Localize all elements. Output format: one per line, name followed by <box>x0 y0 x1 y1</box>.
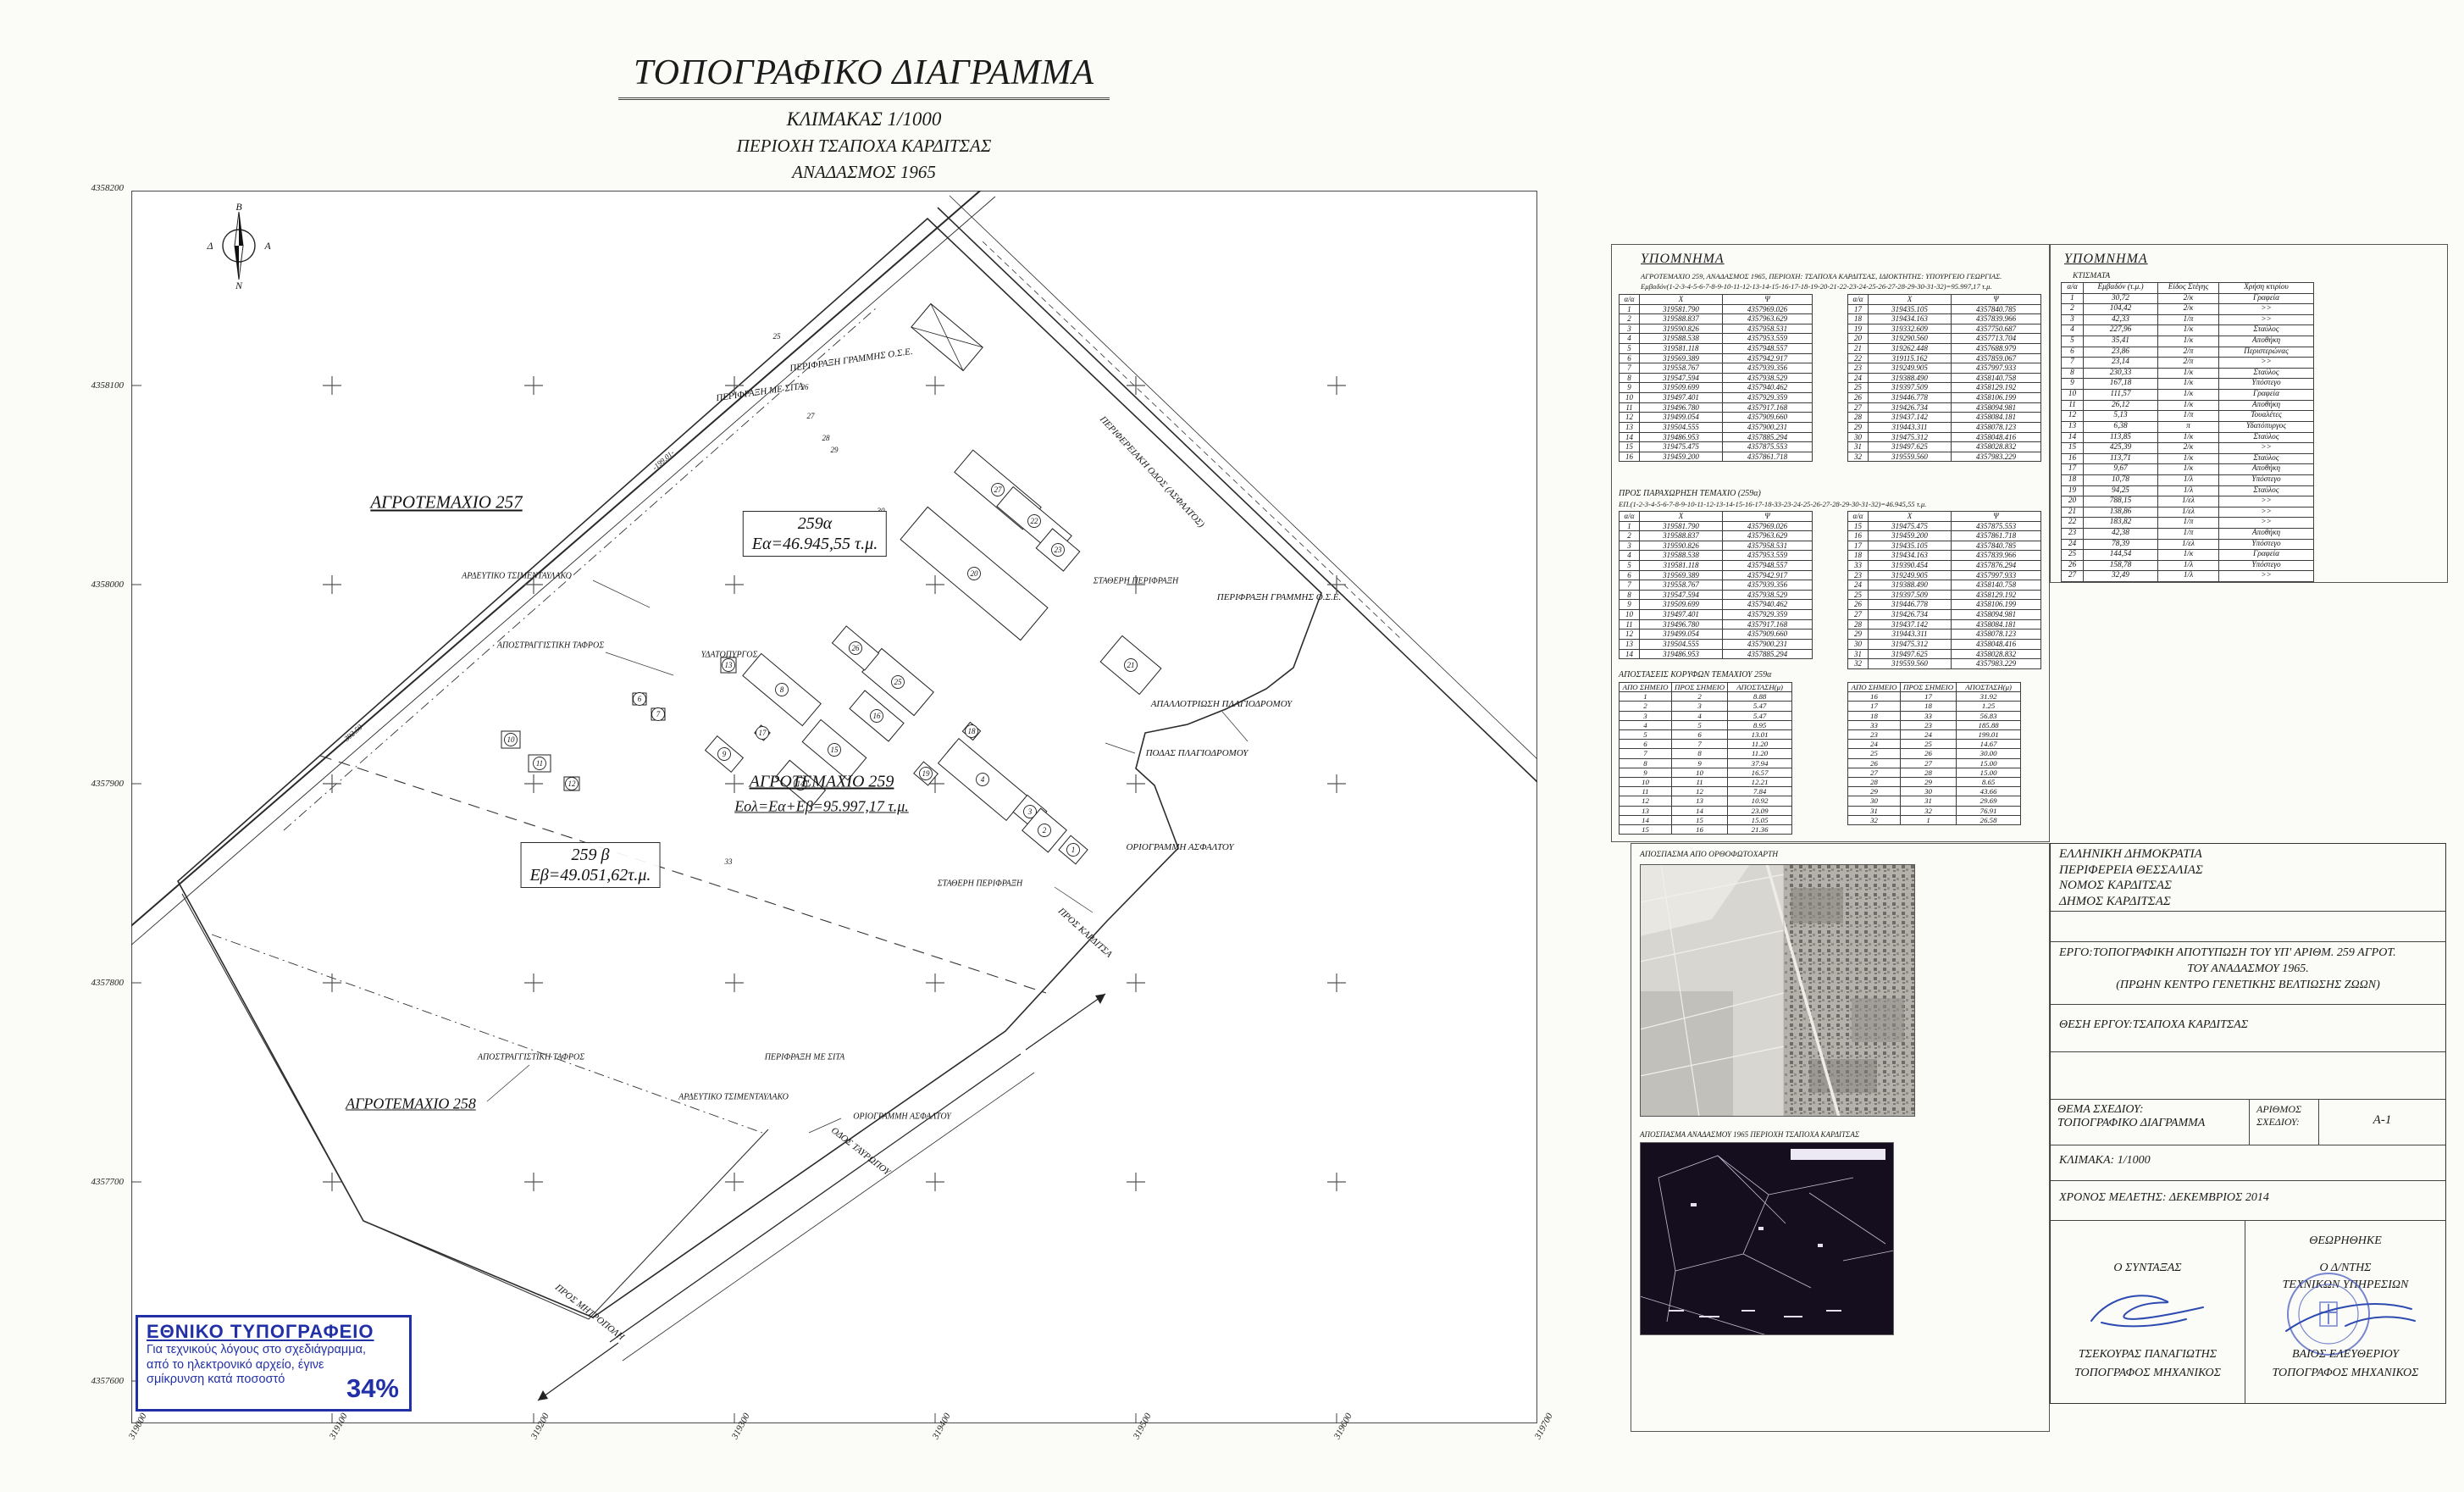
table-cell: 319435.105 <box>1869 541 1952 551</box>
table-row: 130,722/κΓραφεία <box>2062 293 2314 304</box>
table-cell: 319475.312 <box>1869 639 1952 649</box>
building: 11 <box>529 755 551 772</box>
table-cell: 319590.826 <box>1640 324 1723 334</box>
table-cell: 15.00 <box>1957 758 2021 768</box>
table-cell: 26 <box>1901 749 1957 758</box>
section2-title: ΠΡΟΣ ΠΑΡΑΧΩΡΗΣΗ ΤΕΜΑΧΙΟ (259α) <box>1619 489 1761 498</box>
table-cell: 1/π <box>2158 529 2219 540</box>
table-cell: 2 <box>2062 304 2084 315</box>
table-cell: 78,39 <box>2084 539 2158 550</box>
table-cell: 26 <box>1848 393 1869 403</box>
table-row: 6319569.3894357942.917 <box>1620 570 1813 580</box>
building-number: 17 <box>759 729 767 737</box>
table-row: 21319262.4484357688.979 <box>1848 344 2041 354</box>
table-row: 11319496.7804357917.168 <box>1620 619 1813 630</box>
table-cell: 113,85 <box>2084 432 2158 443</box>
table-row: 458.95 <box>1620 720 1792 729</box>
table-cell: 4358084.181 <box>1952 619 2041 630</box>
table-cell: 3 <box>1620 541 1640 551</box>
table-cell: 16 <box>2062 453 2084 464</box>
building: 6 <box>633 693 646 706</box>
col-header: Ψ <box>1723 295 1813 305</box>
col-header: ΠΡΟΣ ΣΗΜΕΙΟ <box>1672 683 1728 692</box>
table-cell: 319558.767 <box>1640 580 1723 591</box>
building-number: 13 <box>725 661 734 669</box>
table-row: 15319475.4754357875.553 <box>1620 442 1813 452</box>
col-header: α/α <box>1848 512 1869 522</box>
table-cell: 24 <box>1848 740 1901 749</box>
table-cell: >> <box>2219 314 2314 325</box>
table-row: 2478,391/ελΥπόστεγο <box>2062 539 2314 550</box>
table-cell: 23 <box>2062 529 2084 540</box>
page-title: ΤΟΠΟΓΡΑΦΙΚΟ ΔΙΑΓΡΑΜΜΑ <box>618 53 1110 100</box>
axis-label-y: 4358200 <box>75 183 124 193</box>
table-cell: 9 <box>1620 600 1640 610</box>
table-cell: 1/λ <box>2158 485 2219 496</box>
stamp-line1: Για τεχνικούς λόγους στο σχεδιάγραμμα, <box>147 1343 402 1358</box>
table-cell: 4357840.785 <box>1952 541 2041 551</box>
table-cell: >> <box>2219 358 2314 369</box>
table-cell: 1 <box>1620 521 1640 531</box>
table-cell: 319249.905 <box>1869 570 1952 580</box>
table-cell: 113,71 <box>2084 453 2158 464</box>
compass-north-label: Β <box>235 202 242 213</box>
col-header: Ψ <box>1952 512 2041 522</box>
table-cell: 7 <box>1672 740 1728 749</box>
table-cell: 1/π <box>2158 314 2219 325</box>
table-cell: 6 <box>1620 740 1672 749</box>
table-row: 15319475.4754357875.553 <box>1848 521 2041 531</box>
table-cell: 8 <box>1672 749 1728 758</box>
table-cell: 11 <box>2062 400 2084 411</box>
table-cell: 76.91 <box>1957 806 2021 815</box>
table-row: 161731.92 <box>1848 692 2021 702</box>
table-row: 10319497.4014357929.359 <box>1620 610 1813 620</box>
table-cell: 1/λ <box>2158 560 2219 571</box>
table-cell: 23 <box>1848 570 1869 580</box>
table-row: 17319435.1054357840.785 <box>1848 541 2041 551</box>
table-row: 2732,491/λ>> <box>2062 571 2314 582</box>
table-row: 26319446.7784358106.199 <box>1848 393 2041 403</box>
table-cell: 4357942.917 <box>1723 570 1813 580</box>
table-cell: 22 <box>1848 353 1869 363</box>
legend2-title: ΥΠΟΜΝΗΜΑ <box>2064 252 2148 267</box>
table-row: 12319499.0544357909.660 <box>1620 630 1813 640</box>
table-cell: 5 <box>1620 730 1672 740</box>
project-line: ΕΡΓΟ:ΤΟΠΟΓΡΑΦΙΚΗ ΑΠΟΤΥΠΩΣΗ ΤΟΥ ΥΠ' ΑΡΙΘΜ… <box>2059 945 2437 961</box>
table-cell: Αποθήκη <box>2219 529 2314 540</box>
table-cell: Υπόστεγο <box>2219 379 2314 390</box>
table-cell: 23 <box>1848 363 1869 374</box>
table-cell: 4357917.168 <box>1723 402 1813 413</box>
table-cell: 15 <box>1848 521 1869 531</box>
table-cell: 4357938.529 <box>1723 373 1813 383</box>
table-cell: 227,96 <box>2084 325 2158 336</box>
table-cell: 12 <box>1620 413 1640 423</box>
year-subtitle: ΑΝΑΔΑΣΜΟΣ 1965 <box>559 162 1169 183</box>
table-row: 31319497.6254358028.832 <box>1848 649 2041 659</box>
table-cell: 25 <box>1848 749 1901 758</box>
approver-role: ΤΟΠΟΓΡΑΦΟΣ ΜΗΧΑΝΙΚΟΣ <box>2245 1367 2445 1380</box>
table-cell: 29 <box>1848 630 1869 640</box>
table-cell: 29.69 <box>1957 796 2021 806</box>
table-cell: 4357940.462 <box>1723 383 1813 393</box>
table-cell: 111,57 <box>2084 390 2158 401</box>
table-cell: 13 <box>1620 639 1640 649</box>
table-cell: 14 <box>1620 815 1672 824</box>
table-row: 179,671/κΑποθήκη <box>2062 464 2314 475</box>
building-number: 8 <box>780 685 784 694</box>
col-header: Ψ <box>1952 295 2041 305</box>
table-cell: 14 <box>1620 432 1640 442</box>
table-row: 5319581.1184357948.557 <box>1620 561 1813 571</box>
table-cell: 27 <box>1848 402 1869 413</box>
col-header: Χ <box>1640 512 1723 522</box>
approver-name: ΒΑΙΟΣ ΕΛΕΥΘΕΡΙΟΥ <box>2245 1348 2445 1362</box>
table-cell: 4357876.294 <box>1952 561 2041 571</box>
table-cell: 4357929.359 <box>1723 610 1813 620</box>
axis-label-y: 4357800 <box>75 978 124 988</box>
table-cell: 16.57 <box>1728 768 1792 777</box>
map-border <box>132 191 1537 1423</box>
table-cell: 4358106.199 <box>1952 600 2041 610</box>
table-cell: 319435.105 <box>1869 304 1952 314</box>
table-cell: 1 <box>1620 304 1640 314</box>
number-label: ΣΧΕΔΙΟΥ: <box>2256 1116 2312 1129</box>
table-row: 125,131/πΤουαλέτες <box>2062 411 2314 422</box>
table-cell: 20 <box>2062 496 2084 508</box>
table-cell: 11 <box>1620 619 1640 630</box>
excerpt-panels-box: ΑΠΟΣΠΑΣΜΑ ΑΠΟ ΟΡΘΟΦΩΤΟΧΑΡΤΗ ΑΠΟΣΠΑΣΜΑ ΑΝ… <box>1631 843 2050 1432</box>
table-row: 28319437.1424358084.181 <box>1848 619 2041 630</box>
table-cell: 1/ελ <box>2158 496 2219 508</box>
number-label: ΑΡΙΘΜΟΣ <box>2256 1103 2312 1116</box>
table-row: 2324199.01 <box>1848 730 2021 740</box>
compass-west-label: Δ <box>206 240 213 252</box>
table-row: 6319569.3894357942.917 <box>1620 353 1813 363</box>
table-cell: 25 <box>1848 383 1869 393</box>
table-cell: 22 <box>2062 518 2084 529</box>
table-cell: 12 <box>1620 796 1672 806</box>
table-cell: 25 <box>1848 590 1869 600</box>
table-cell: 7 <box>1620 749 1672 758</box>
table-cell: >> <box>2219 571 2314 582</box>
building-number: 26 <box>852 644 861 652</box>
table-cell: 42,38 <box>2084 529 2158 540</box>
table-row: 242514.67 <box>1848 740 2021 749</box>
distances-table-2: ΑΠΟ ΣΗΜΕΙΟ ΠΡΟΣ ΣΗΜΕΙΟ ΑΠΟΣΤΑΣΗ(μ) 16173… <box>1847 682 2021 825</box>
author-signature-cell: Ο ΣΥΝΤΑΞΑΣ ΤΣΕΚΟΥΡΑΣ ΠΑΝΑΓΙΩΤΗΣ ΤΟΠΟΓΡΑΦ… <box>2051 1221 2245 1403</box>
table-cell: 10 <box>1620 610 1640 620</box>
stamp-percentage: 34% <box>346 1373 399 1404</box>
table-cell: 4358048.416 <box>1952 432 2041 442</box>
table-cell: 4357969.026 <box>1723 521 1813 531</box>
table-row: 30319475.3124358048.416 <box>1848 432 2041 442</box>
table-row: 535,411/κΑποθήκη <box>2062 336 2314 347</box>
table-cell: 4358078.123 <box>1952 630 2041 640</box>
location-row: ΘΕΣΗ ΕΡΓΟΥ:ΤΣΑΠΟΧΑ ΚΑΡΔΙΤΣΑΣ <box>2051 1005 2445 1052</box>
table-cell: 2 <box>1620 531 1640 541</box>
col-header: Εμβαδόν (τ.μ.) <box>2084 283 2158 294</box>
table-cell: 8.65 <box>1957 778 2021 787</box>
table-cell: 13 <box>1672 796 1728 806</box>
table-row: 26319446.7784358106.199 <box>1848 600 2041 610</box>
table-cell: 4357900.231 <box>1723 639 1813 649</box>
table-cell: 13 <box>1620 806 1672 815</box>
table-cell: 319426.734 <box>1869 402 1952 413</box>
table-cell: 16 <box>1848 531 1869 541</box>
table-cell: Αποθήκη <box>2219 464 2314 475</box>
table-cell: Γραφεία <box>2219 293 2314 304</box>
table-cell: 183,82 <box>2084 518 2158 529</box>
table-cell: 319388.490 <box>1869 580 1952 591</box>
table-cell: Σταύλος <box>2219 432 2314 443</box>
table-cell: 28 <box>1901 768 1957 777</box>
stamp-title: ΕΘΝΙΚΟ ΤΥΠΟΓΡΑΦΕΙΟ <box>147 1321 402 1343</box>
building-number: 10 <box>507 735 516 744</box>
project-line: ΤΟΥ ΑΝΑΔΑΣΜΟΥ 1965. <box>2059 961 2437 977</box>
table-row: 7319558.7674357939.356 <box>1620 363 1813 374</box>
table-cell: 5 <box>1620 561 1640 571</box>
table-cell: 4357958.531 <box>1723 541 1813 551</box>
table-row: 9167,181/κΥπόστεγο <box>2062 379 2314 390</box>
table-cell: 319497.401 <box>1640 610 1723 620</box>
table-cell: 31 <box>1848 442 1869 452</box>
table-cell: 56.83 <box>1957 711 2021 720</box>
table-cell: 5.47 <box>1728 702 1792 711</box>
table-cell: 9,67 <box>2084 464 2158 475</box>
table-cell: 4 <box>1620 720 1672 729</box>
table-cell: 11.20 <box>1728 749 1792 758</box>
author-name: ΤΣΕΚΟΥΡΑΣ ΠΑΝΑΓΙΩΤΗΣ <box>2051 1348 2245 1362</box>
table-row: 10319497.4014357929.359 <box>1620 393 1813 403</box>
table-cell: 17 <box>1848 541 1869 551</box>
axis-label-y: 4358000 <box>75 580 124 590</box>
table-cell: 2 <box>1620 314 1640 324</box>
table-cell: 319588.538 <box>1640 551 1723 561</box>
table-cell: 26 <box>1848 600 1869 610</box>
table-cell: 6 <box>1620 353 1640 363</box>
table-cell: 12.21 <box>1728 778 1792 787</box>
table-cell: 4358028.832 <box>1952 649 2041 659</box>
table-row: 18319434.1634357839.966 <box>1848 551 2041 561</box>
table-cell: 319496.780 <box>1640 402 1723 413</box>
table-row: 262715.00 <box>1848 758 2021 768</box>
distances-table-1: ΑΠΟ ΣΗΜΕΙΟ ΠΡΟΣ ΣΗΜΕΙΟ ΑΠΟΣΤΑΣΗ(μ) 128.8… <box>1619 682 1792 835</box>
table-cell: 33 <box>1848 720 1901 729</box>
table-cell: 4357942.917 <box>1723 353 1813 363</box>
table-cell: 30 <box>1848 432 1869 442</box>
table-row: 345.47 <box>1620 711 1792 720</box>
table-cell: 4357909.660 <box>1723 630 1813 640</box>
table-cell: 425,39 <box>2084 443 2158 454</box>
table-cell: 319509.699 <box>1640 383 1723 393</box>
table-row: 8230,331/κΣταύλος <box>2062 368 2314 379</box>
table-cell: 319390.454 <box>1869 561 1952 571</box>
table-cell: 4357948.557 <box>1723 344 1813 354</box>
table-cell: 4357939.356 <box>1723 580 1813 591</box>
table-row: 5319581.1184357948.557 <box>1620 344 1813 354</box>
building-number: 25 <box>894 678 903 686</box>
subject-cell: ΘΕΜΑ ΣΧΕΔΙΟΥ: ΤΟΠΟΓΡΑΦΙΚΟ ΔΙΑΓΡΑΜΜΑ <box>2051 1100 2250 1145</box>
compass-south-label: Ν <box>235 280 243 290</box>
project-section: ΕΡΓΟ:ΤΟΠΟΓΡΑΦΙΚΗ ΑΠΟΤΥΠΩΣΗ ΤΟΥ ΥΠ' ΑΡΙΘΜ… <box>2051 942 2445 1005</box>
table-cell: 319446.778 <box>1869 600 1952 610</box>
table-cell: 319437.142 <box>1869 619 1952 630</box>
table-cell: 4358078.123 <box>1952 422 2041 432</box>
table-row: 30319475.3124358048.416 <box>1848 639 2041 649</box>
stamp-line2: από το ηλεκτρονικό αρχείο, έγινε <box>147 1358 402 1373</box>
table-row: 272815.00 <box>1848 768 2021 777</box>
col-header: Χ <box>1869 295 1952 305</box>
map-drawing: 2722232021813543211819101112161514967172… <box>131 191 1537 1423</box>
table-cell: 21 <box>1848 344 1869 354</box>
table-row: 27319426.7344358094.981 <box>1848 402 2041 413</box>
table-cell: 10,78 <box>2084 474 2158 485</box>
building-number: 15 <box>831 746 839 754</box>
table-row: 4319588.5384357953.559 <box>1620 551 1813 561</box>
table-cell: 15 <box>2062 443 2084 454</box>
table-cell: 29 <box>1848 422 1869 432</box>
table-row: 21138,861/ελ>> <box>2062 507 2314 518</box>
table-cell: 2/κ <box>2158 304 2219 315</box>
table-cell: 33 <box>1848 561 1869 571</box>
table-cell: 15.00 <box>1957 768 2021 777</box>
table-cell: 31 <box>1848 806 1901 815</box>
table-row: 3323185.88 <box>1848 720 2021 729</box>
col-header: Χ <box>1640 295 1723 305</box>
table-cell: 199.01 <box>1957 730 2021 740</box>
table-cell: 788,15 <box>2084 496 2158 508</box>
table-cell: 319569.389 <box>1640 353 1723 363</box>
table-cell: 24 <box>2062 539 2084 550</box>
table-row: 2342,381/πΑποθήκη <box>2062 529 2314 540</box>
table-row: 32319559.5604357983.229 <box>1848 452 2041 462</box>
table-row: 23319249.9054357997.933 <box>1848 570 2041 580</box>
author-role: ΤΟΠΟΓΡΑΦΟΣ ΜΗΧΑΝΙΚΟΣ <box>2051 1367 2245 1380</box>
table-cell: 9 <box>1620 383 1640 393</box>
table-row: 183356.83 <box>1848 711 2021 720</box>
table-cell: 104,42 <box>2084 304 2158 315</box>
table-row: 24319388.4904358140.758 <box>1848 580 2041 591</box>
table-cell: 138,86 <box>2084 507 2158 518</box>
table-cell: 1/κ <box>2158 550 2219 561</box>
table-cell: 11.20 <box>1728 740 1792 749</box>
distances-title: ΑΠΟΣΤΑΣΕΙΣ ΚΟΡΥΦΩΝ ΤΕΜΑΧΙΟΥ 259α <box>1619 670 1771 679</box>
table-cell: 4357861.718 <box>1952 531 2041 541</box>
table-row: 16319459.2004357861.718 <box>1620 452 1813 462</box>
table-cell: 8.88 <box>1728 692 1792 702</box>
table-cell: 24 <box>1848 373 1869 383</box>
table-cell: 21.36 <box>1728 825 1792 835</box>
table-cell: Περιστερώνας <box>2219 347 2314 358</box>
table-cell: >> <box>2219 518 2314 529</box>
table-cell: 25 <box>1901 740 1957 749</box>
legend2-subtitle: ΚΤΙΣΜΑΤΑ <box>2073 272 2110 280</box>
table-cell: 14.67 <box>1957 740 2021 749</box>
table-cell: 1/κ <box>2158 325 2219 336</box>
building: 13 <box>721 657 736 673</box>
coords-table-1: α/α Χ Ψ 1319581.7904357969.0262319588.83… <box>1619 294 1813 462</box>
table-cell: 319446.778 <box>1869 393 1952 403</box>
table-cell: 11 <box>1620 402 1640 413</box>
table-cell: 319397.509 <box>1869 590 1952 600</box>
table-cell: 1/ελ <box>2158 539 2219 550</box>
table-cell: 319249.905 <box>1869 363 1952 374</box>
building-number: 7 <box>656 710 661 718</box>
table-cell: 4357963.629 <box>1723 531 1813 541</box>
legend1-area-formula: Εμβαδόν(1-2-3-4-5-6-7-8-9-10-11-12-13-14… <box>1641 282 1992 291</box>
project-line: (ΠΡΩΗΝ ΚΕΝΤΡΟ ΓΕΝΕΤΙΚΗΣ ΒΕΛΤΙΩΣΗΣ ΖΩΩΝ) <box>2059 977 2437 993</box>
table-cell: 15.05 <box>1728 815 1792 824</box>
table-cell: 26 <box>1848 758 1901 768</box>
table-cell: 1/κ <box>2158 390 2219 401</box>
building-number: 21 <box>1127 661 1135 669</box>
table-cell: Γραφεία <box>2219 550 2314 561</box>
table-cell: 1/λ <box>2158 474 2219 485</box>
table-cell: 18 <box>1901 702 1957 711</box>
table-row: 151621.36 <box>1620 825 1792 835</box>
table-cell: 10 <box>1620 778 1672 787</box>
table-cell: 13 <box>2062 421 2084 432</box>
table-cell: 2/κ <box>2158 443 2219 454</box>
table-cell: 3 <box>1620 711 1672 720</box>
table-cell: 319547.594 <box>1640 590 1723 600</box>
table-cell: 185.88 <box>1957 720 2021 729</box>
table-cell: 5 <box>1672 720 1728 729</box>
table-cell: 2 <box>1620 702 1672 711</box>
table-cell: 319581.118 <box>1640 561 1723 571</box>
table-cell: 6,38 <box>2084 421 2158 432</box>
table-row: 20788,151/ελ>> <box>2062 496 2314 508</box>
table-cell: Αποθήκη <box>2219 400 2314 411</box>
table-cell: 31 <box>1901 796 1957 806</box>
table-cell: 27 <box>1848 768 1901 777</box>
table-cell: 12 <box>1672 787 1728 796</box>
table-cell: 319569.389 <box>1640 570 1723 580</box>
north-compass-icon: Β Ν Α Δ <box>203 202 274 290</box>
col-header: ΠΡΟΣ ΣΗΜΕΙΟ <box>1901 683 1957 692</box>
table-cell: 319496.780 <box>1640 619 1723 630</box>
orthophoto-label: ΑΠΟΣΠΑΣΜΑ ΑΠΟ ΟΡΘΟΦΩΤΟΧΑΡΤΗ <box>1640 851 1778 859</box>
table-cell: 7 <box>1620 363 1640 374</box>
table-cell: 23.09 <box>1728 806 1792 815</box>
round-stamp-icon <box>2269 1265 2422 1358</box>
table-row: 313276.91 <box>1848 806 2021 815</box>
table-cell: 319559.560 <box>1869 452 1952 462</box>
authority-section: ΕΛΛΗΝΙΚΗ ΔΗΜΟΚΡΑΤΙΑ ΠΕΡΙΦΕΡΕΙΑ ΘΕΣΣΑΛΙΑΣ… <box>2051 844 2445 912</box>
table-cell: 10 <box>1672 768 1728 777</box>
table-cell: 32,49 <box>2084 571 2158 582</box>
building-number: 1 <box>1071 846 1076 854</box>
table-cell: 12 <box>2062 411 2084 422</box>
table-row: 26158,781/λΥπόστεγο <box>2062 560 2314 571</box>
building-number: 9 <box>723 750 727 758</box>
authority-line: ΔΗΜΟΣ ΚΑΡΔΙΤΣΑΣ <box>2059 894 2437 910</box>
table-cell: 17 <box>1848 304 1869 314</box>
table-cell: 21 <box>2062 507 2084 518</box>
axis-label-x: 319000 <box>127 1412 149 1441</box>
table-cell: 27 <box>1901 758 1957 768</box>
table-cell: 4357969.026 <box>1723 304 1813 314</box>
table-cell: 319497.625 <box>1869 442 1952 452</box>
table-cell: Υπόστεγο <box>2219 474 2314 485</box>
table-cell: 4357948.557 <box>1723 561 1813 571</box>
table-cell: 319332.609 <box>1869 324 1952 334</box>
table-cell: >> <box>2219 304 2314 315</box>
table-cell: 6 <box>1672 730 1728 740</box>
table-cell: 6 <box>1620 570 1640 580</box>
